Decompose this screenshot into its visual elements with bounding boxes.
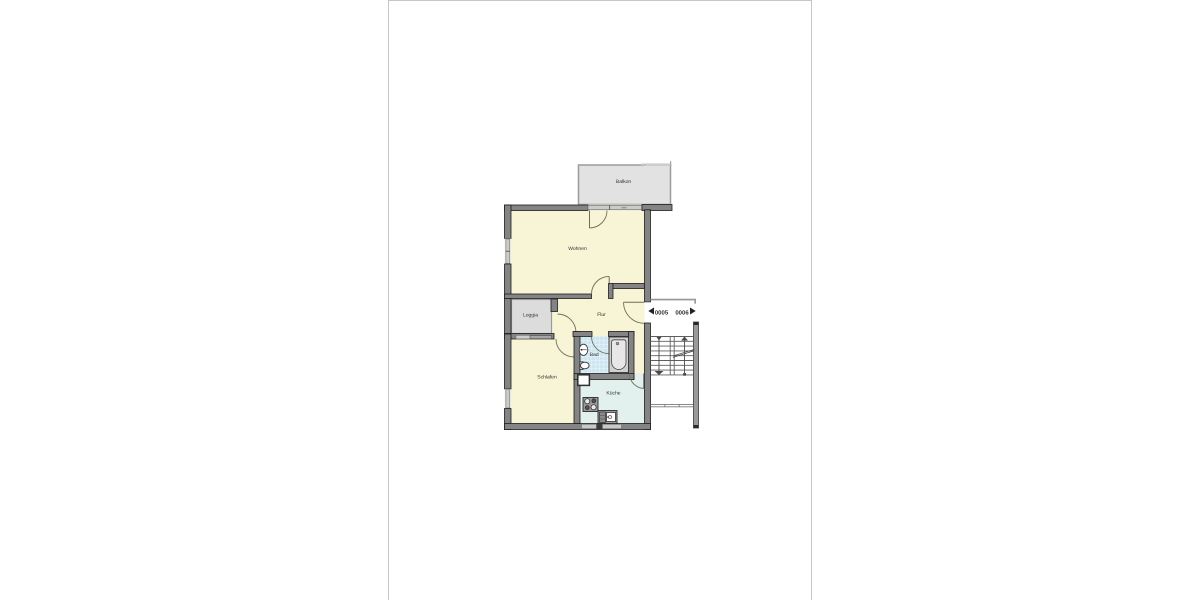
svg-text:Wohnen: Wohnen <box>568 246 587 252</box>
svg-text:0006: 0006 <box>675 309 689 316</box>
svg-text:Flur: Flur <box>597 312 606 318</box>
svg-text:Schlafen: Schlafen <box>537 375 556 381</box>
svg-text:Bad: Bad <box>590 352 599 358</box>
svg-text:Balkon: Balkon <box>616 179 631 185</box>
svg-text:Küche: Küche <box>606 390 620 396</box>
svg-text:0005: 0005 <box>655 309 669 316</box>
svg-text:Loggia: Loggia <box>523 313 538 319</box>
